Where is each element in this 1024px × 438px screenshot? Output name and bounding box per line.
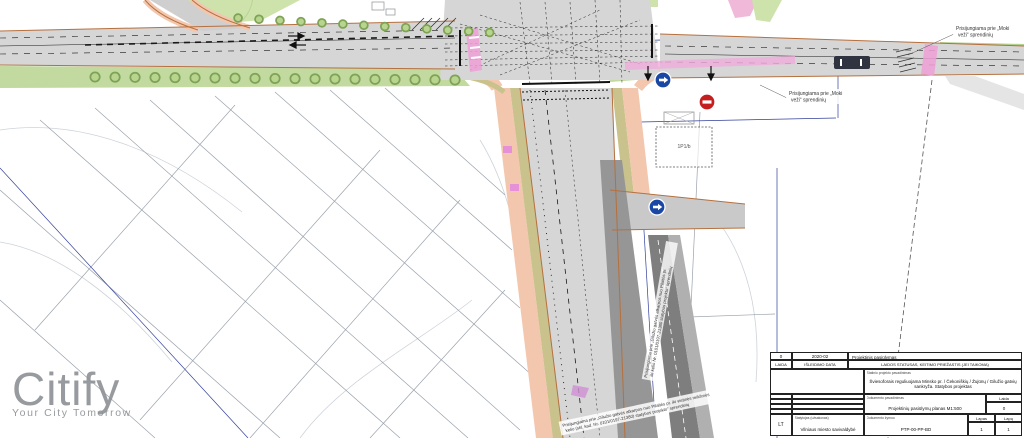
language-code: LT xyxy=(770,414,792,436)
bus-stop xyxy=(834,56,870,69)
sheet-label: Lapas xyxy=(968,414,995,422)
document-label: Dokumento pavadinimas xyxy=(867,396,904,400)
site-plan-drawing: 1P1/b Prisijungiama prie „Moki veži“ spr… xyxy=(0,0,1024,438)
laida-header: LAIDA xyxy=(770,360,792,369)
annotation-text: Prisijungiama prie „Moki xyxy=(956,26,1009,32)
sheets-value: 1 xyxy=(995,422,1022,436)
building-label: 1P1/b xyxy=(677,144,690,150)
sheets-label: Lapų xyxy=(995,414,1022,422)
doc-code-label: Dokumento žymuo xyxy=(867,416,895,420)
project-cell: Statinio projekto pavadinimas Šviesofora… xyxy=(864,369,1022,394)
laida-box-value: 0 xyxy=(986,402,1022,414)
revision-status: Projektinis pasiūlymas xyxy=(848,352,1022,360)
annotation-text: veži“ sprendinių xyxy=(791,98,826,104)
annotation-moki-mid: Prisijungiama prie „Moki veži“ sprendini… xyxy=(760,85,854,104)
logo-tagline: Your City Tomorrow xyxy=(12,408,132,419)
attestation-box xyxy=(770,369,864,394)
revision-date: 2020-02 xyxy=(792,352,848,360)
date-header: IŠLEIDIMO DATA xyxy=(792,360,848,369)
status-header: LAIDOS STATUSAS, KEITIMO PRIEŽASTIS (JEI… xyxy=(848,360,1022,369)
client-label: Statytojas (užsakovas) xyxy=(795,416,829,420)
title-block: 0 2020-02 Projektinis pasiūlymas LAIDA I… xyxy=(770,352,1022,436)
client-cell: Statytojas (užsakovas) Vilniaus miesto s… xyxy=(792,414,864,436)
one-way-sign-1 xyxy=(655,72,671,88)
one-way-sign-2 xyxy=(649,199,665,215)
project-label: Statinio projekto pavadinimas xyxy=(867,371,911,375)
doc-code-cell: Dokumento žymuo PTP-00-PP-BD xyxy=(864,414,968,436)
logo-brand: Citify xyxy=(12,366,132,412)
small-structures xyxy=(372,2,395,15)
laida-box-label: Laida xyxy=(986,394,1022,402)
building-outline: 1P1/b xyxy=(656,112,712,167)
no-entry-sign xyxy=(699,94,715,110)
revision-value: 0 xyxy=(770,352,792,360)
leader-line xyxy=(760,85,787,98)
annotation-text: veži“ sprendinių xyxy=(958,33,993,39)
sheet-value: 1 xyxy=(968,422,995,436)
citify-logo: Citify Your City Tomorrow xyxy=(12,366,132,419)
annotation-text: Prisijungiama prie „Moki xyxy=(789,91,842,97)
document-cell: Dokumento pavadinimas Projektinių pasiūl… xyxy=(864,394,986,414)
